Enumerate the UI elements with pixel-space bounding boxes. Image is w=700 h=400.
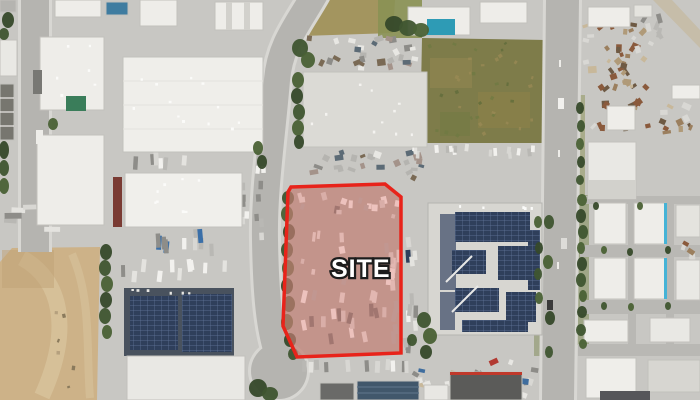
solar-roof-building-left	[124, 288, 245, 400]
solar-roof-building-right	[428, 203, 542, 335]
aerial-site-screenshot: SITE	[0, 0, 700, 400]
site-label: SITE	[331, 255, 391, 283]
green-field	[420, 38, 547, 143]
site-parcel: SITE	[283, 184, 401, 357]
aerial-photo: SITE	[0, 0, 700, 400]
dirt-field	[0, 247, 100, 400]
